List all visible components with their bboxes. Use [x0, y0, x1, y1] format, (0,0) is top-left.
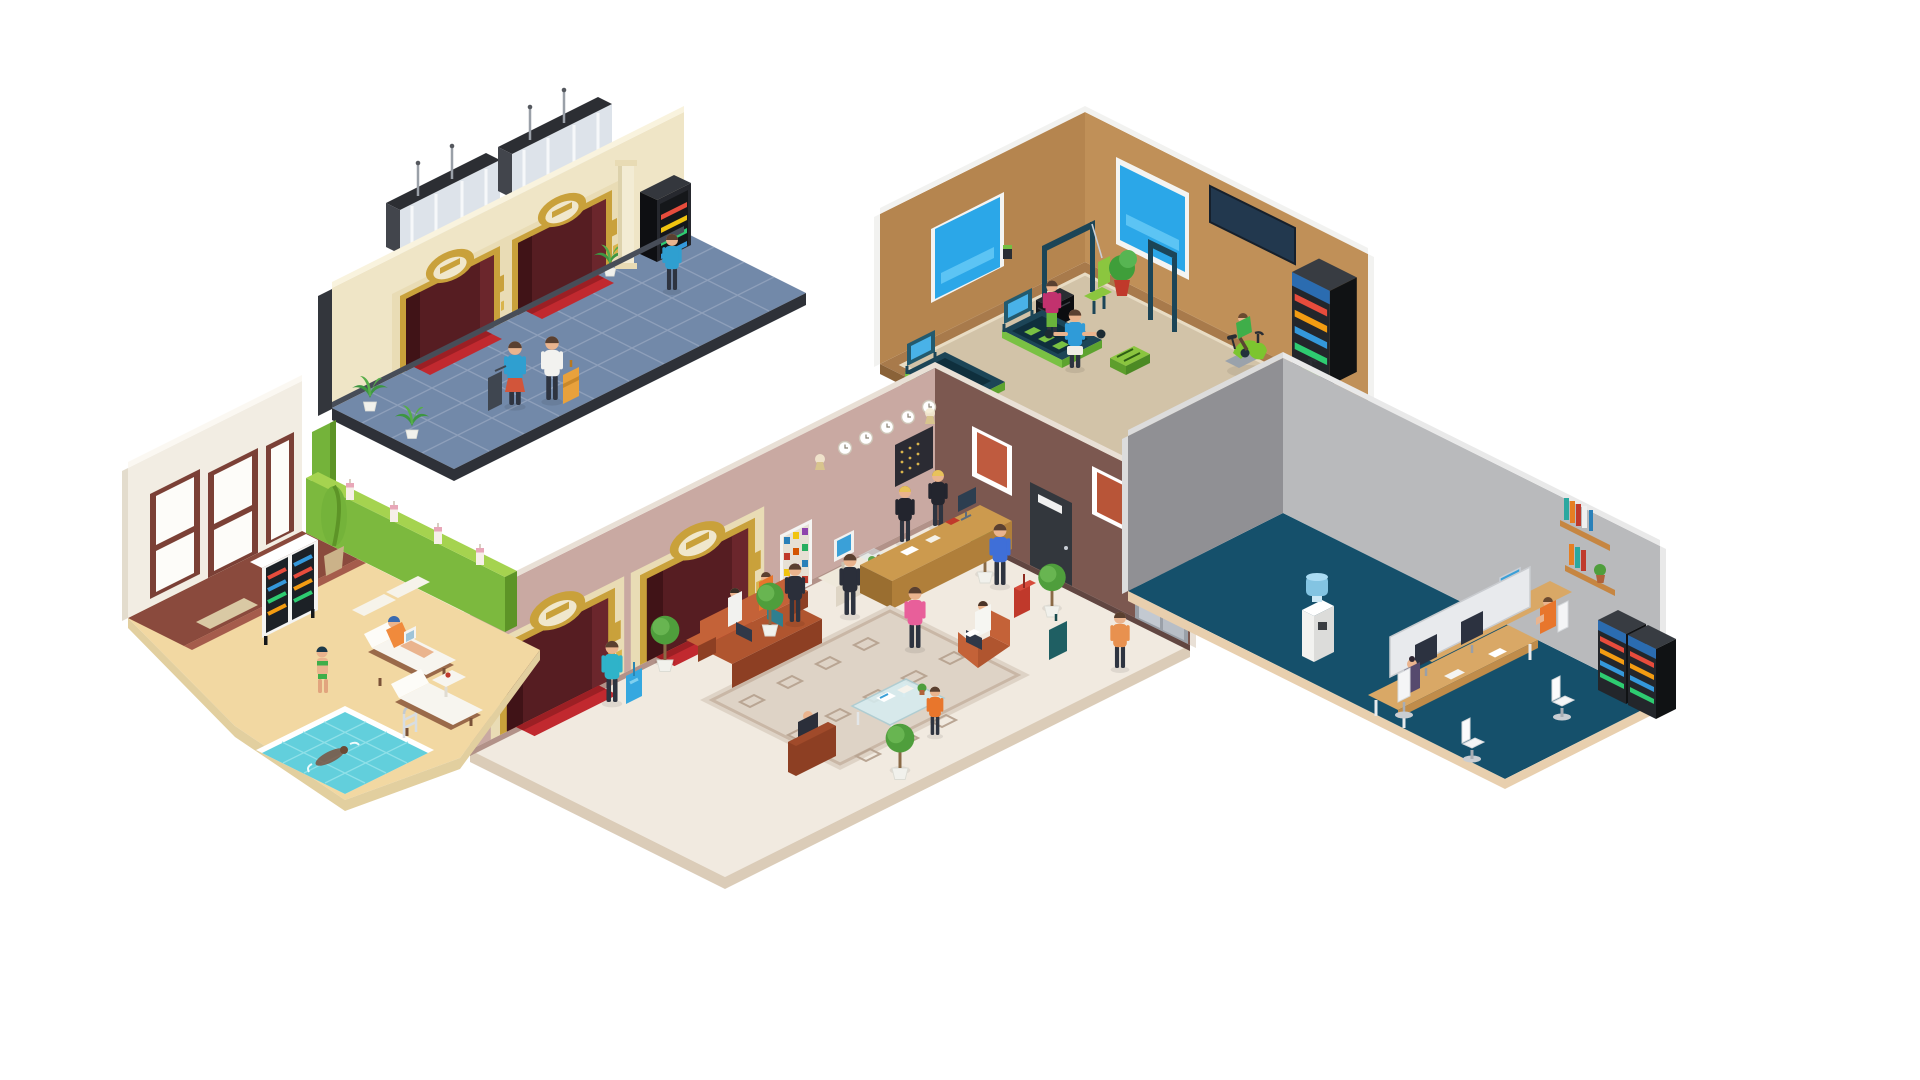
- illustration-canvas: [0, 0, 1920, 1080]
- wall-lamp: [815, 454, 825, 470]
- exterior-wall-edge: [318, 289, 332, 416]
- office-scene: [1122, 352, 1676, 789]
- lobby-scene: [464, 362, 1196, 889]
- drinks-fridge: [1628, 625, 1676, 719]
- illustration-page: [0, 0, 1920, 1080]
- wall-lamp: [925, 408, 935, 424]
- elevator-hall-scene: [318, 88, 806, 481]
